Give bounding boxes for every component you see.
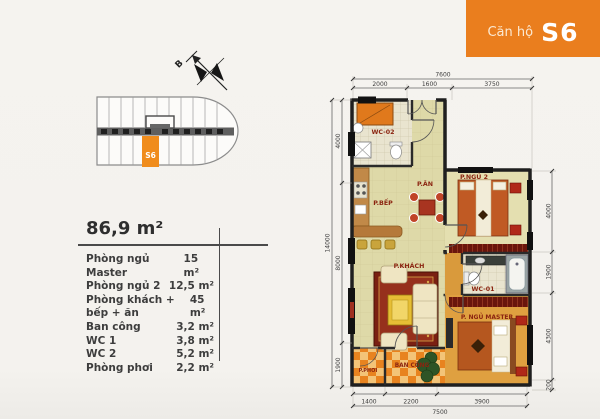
compass-icon: B	[174, 51, 227, 90]
dim-right-4: 200	[546, 379, 553, 391]
bar-stool	[357, 240, 367, 249]
dim-left-1: 4000	[335, 133, 342, 148]
bar-counter	[352, 226, 402, 237]
dim-bottom-3: 3900	[474, 399, 489, 406]
hallway-floor	[445, 253, 463, 295]
page: Căn hộ S6 86,9 m² Phòng ngủ Master15 m² …	[0, 0, 600, 419]
wc1-label: WC-01	[471, 286, 494, 293]
dim-right-2: 1900	[546, 264, 553, 279]
dim-bottom-total: 7500	[432, 409, 447, 416]
wardrobe-bedroom2	[449, 244, 528, 253]
dim-top-3: 3750	[484, 81, 499, 88]
nightstand	[510, 183, 521, 193]
dim-left-total: 14000	[325, 233, 332, 252]
dim-bottom-1: 1400	[361, 399, 376, 406]
nightstand	[516, 316, 527, 325]
tv-cabinet-master	[446, 318, 453, 348]
wardrobe-master	[449, 297, 528, 307]
dim-top-total: 7600	[435, 72, 450, 79]
nightstand	[516, 367, 527, 376]
dining-label: P.ĂN	[417, 179, 433, 188]
dim-top-2: 1600	[422, 81, 437, 88]
balcony-label: BAN CÔNG	[395, 362, 430, 369]
dim-right-1: 4000	[546, 203, 553, 218]
dim-right-3: 4300	[546, 328, 553, 343]
tv-screen	[350, 302, 354, 318]
dim-left-3: 1900	[335, 357, 342, 372]
kitchen-sink	[355, 205, 366, 214]
bar-stool	[371, 240, 381, 249]
stove	[354, 182, 367, 198]
drying-label: P.PHƠI	[359, 368, 378, 374]
bed-master	[458, 318, 516, 374]
bar-stool	[385, 240, 395, 249]
toilet-wc2	[391, 145, 402, 159]
bed-bedroom2	[458, 180, 508, 236]
wc2-label: WC-02	[371, 129, 394, 136]
living-label: P.KHÁCH	[394, 261, 425, 270]
nightstand	[510, 225, 521, 235]
drying-floor	[352, 348, 385, 385]
floor-plan-drawing: S6 B	[0, 0, 600, 419]
key-plan: S6	[97, 97, 238, 167]
highlighted-unit-label: S6	[145, 151, 156, 160]
toilet-wc1	[469, 272, 480, 285]
dim-left-2: 8000	[335, 255, 342, 270]
dim-bottom-2: 2200	[403, 399, 418, 406]
lobby-core	[150, 124, 170, 129]
dim-top-1: 2000	[372, 81, 387, 88]
master-label: P. NGỦ MASTER	[461, 313, 514, 321]
sink-wc2	[353, 123, 363, 133]
compass-north-label: B	[174, 59, 186, 71]
bathtub	[506, 255, 528, 293]
